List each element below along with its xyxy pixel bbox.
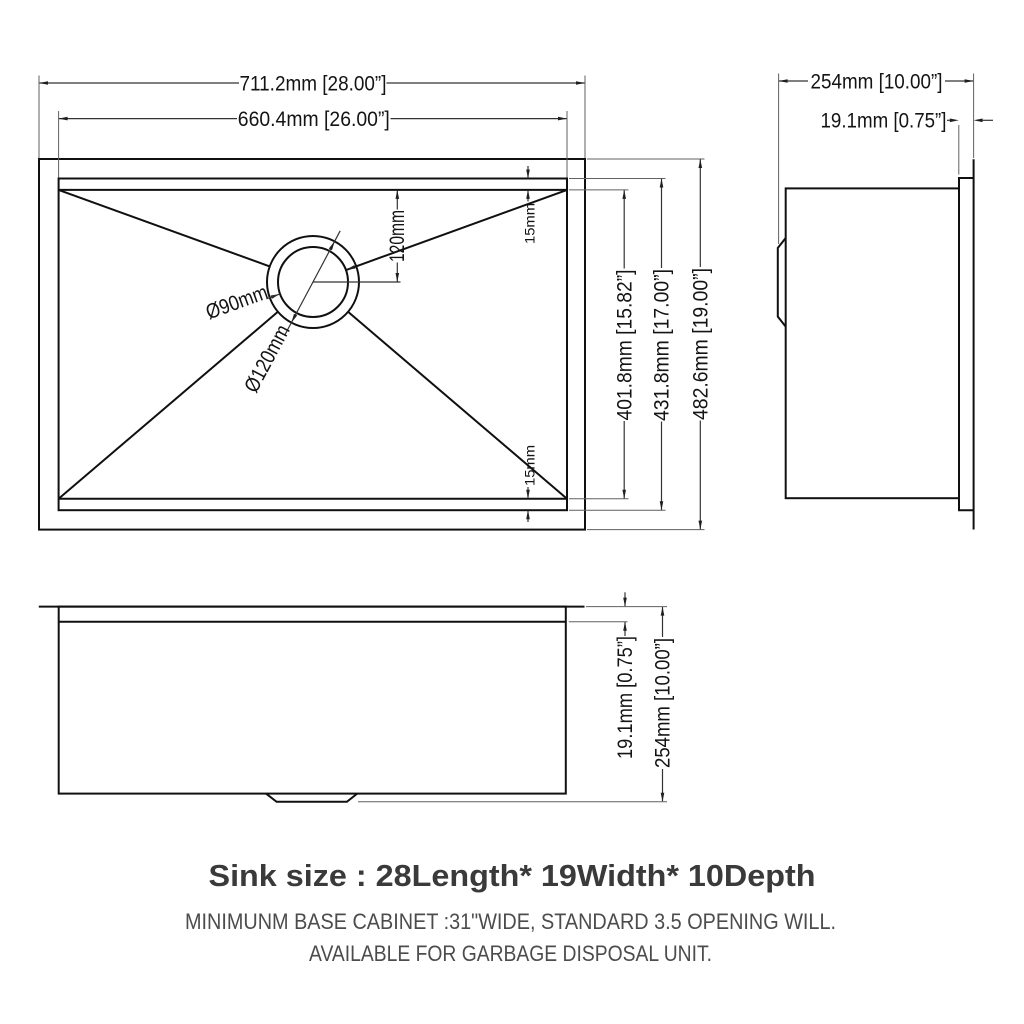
svg-text:254mm [10.00”]: 254mm [10.00”]: [811, 70, 943, 93]
svg-text:Ø120mm: Ø120mm: [240, 321, 295, 396]
svg-text:AVAILABLE FOR GARBAGE DISPOSAL: AVAILABLE FOR GARBAGE DISPOSAL UNIT.: [309, 941, 712, 966]
svg-text:254mm [10.00”]: 254mm [10.00”]: [652, 638, 675, 768]
svg-text:431.8mm [17.00”]: 431.8mm [17.00”]: [651, 269, 674, 421]
svg-text:15mm: 15mm: [521, 445, 537, 486]
svg-text:MINIMUNM BASE CABINET :31"WIDE: MINIMUNM BASE CABINET :31"WIDE, STANDARD…: [185, 909, 836, 934]
svg-text:15mm: 15mm: [521, 203, 537, 244]
svg-text:19.1mm [0.75”]: 19.1mm [0.75”]: [614, 636, 637, 759]
svg-text:660.4mm [26.00”]: 660.4mm [26.00”]: [238, 108, 390, 131]
svg-text:19.1mm [0.75”]: 19.1mm [0.75”]: [821, 110, 947, 133]
svg-text:Ø90mm: Ø90mm: [203, 281, 271, 324]
svg-text:Sink size : 28Length* 19Width: Sink size : 28Length* 19Width* 10Depth: [209, 858, 816, 893]
svg-text:711.2mm [28.00”]: 711.2mm [28.00”]: [240, 72, 387, 95]
svg-text:120mm: 120mm: [386, 210, 409, 262]
svg-text:401.8mm [15.82”]: 401.8mm [15.82”]: [613, 270, 636, 421]
svg-text:482.6mm [19.00”]: 482.6mm [19.00”]: [690, 268, 713, 420]
